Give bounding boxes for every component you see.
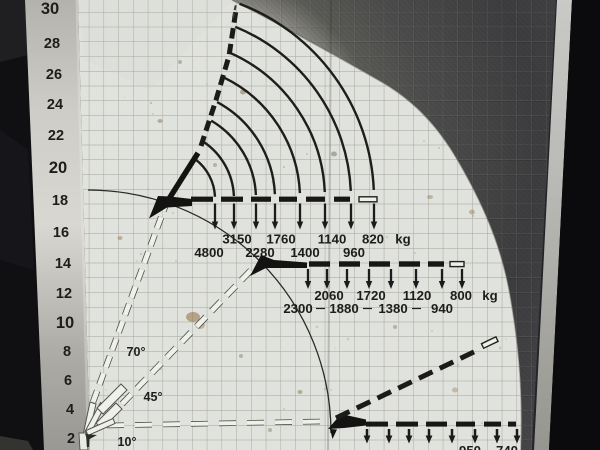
svg-text:28: 28 [44, 36, 60, 52]
svg-text:12: 12 [56, 286, 72, 302]
svg-text:18: 18 [52, 193, 68, 209]
svg-text:1380: 1380 [378, 301, 407, 316]
svg-text:70°: 70° [127, 345, 146, 359]
svg-text:10°: 10° [118, 435, 137, 449]
svg-text:30: 30 [41, 0, 59, 18]
svg-text:800: 800 [450, 288, 472, 303]
svg-text:kg: kg [482, 288, 497, 303]
svg-text:4800: 4800 [194, 245, 223, 260]
svg-text:22: 22 [48, 128, 64, 144]
svg-text:6: 6 [64, 373, 72, 389]
svg-text:1400: 1400 [290, 245, 319, 260]
svg-text:740: 740 [496, 443, 518, 450]
svg-text:950: 950 [459, 443, 481, 450]
svg-text:14: 14 [55, 256, 71, 272]
svg-text:960: 960 [343, 245, 365, 260]
svg-text:kg: kg [395, 232, 410, 247]
svg-text:20: 20 [49, 159, 67, 177]
svg-text:26: 26 [46, 67, 62, 83]
svg-text:8: 8 [63, 344, 71, 360]
svg-text:820: 820 [362, 232, 384, 247]
svg-text:10: 10 [56, 314, 74, 332]
svg-text:940: 940 [431, 301, 453, 316]
svg-text:1880: 1880 [329, 301, 358, 316]
svg-text:45°: 45° [144, 390, 163, 404]
svg-text:4: 4 [66, 402, 74, 418]
svg-text:16: 16 [53, 225, 69, 241]
svg-text:2300: 2300 [283, 301, 312, 316]
svg-text:2: 2 [67, 431, 75, 447]
svg-text:24: 24 [47, 97, 63, 113]
